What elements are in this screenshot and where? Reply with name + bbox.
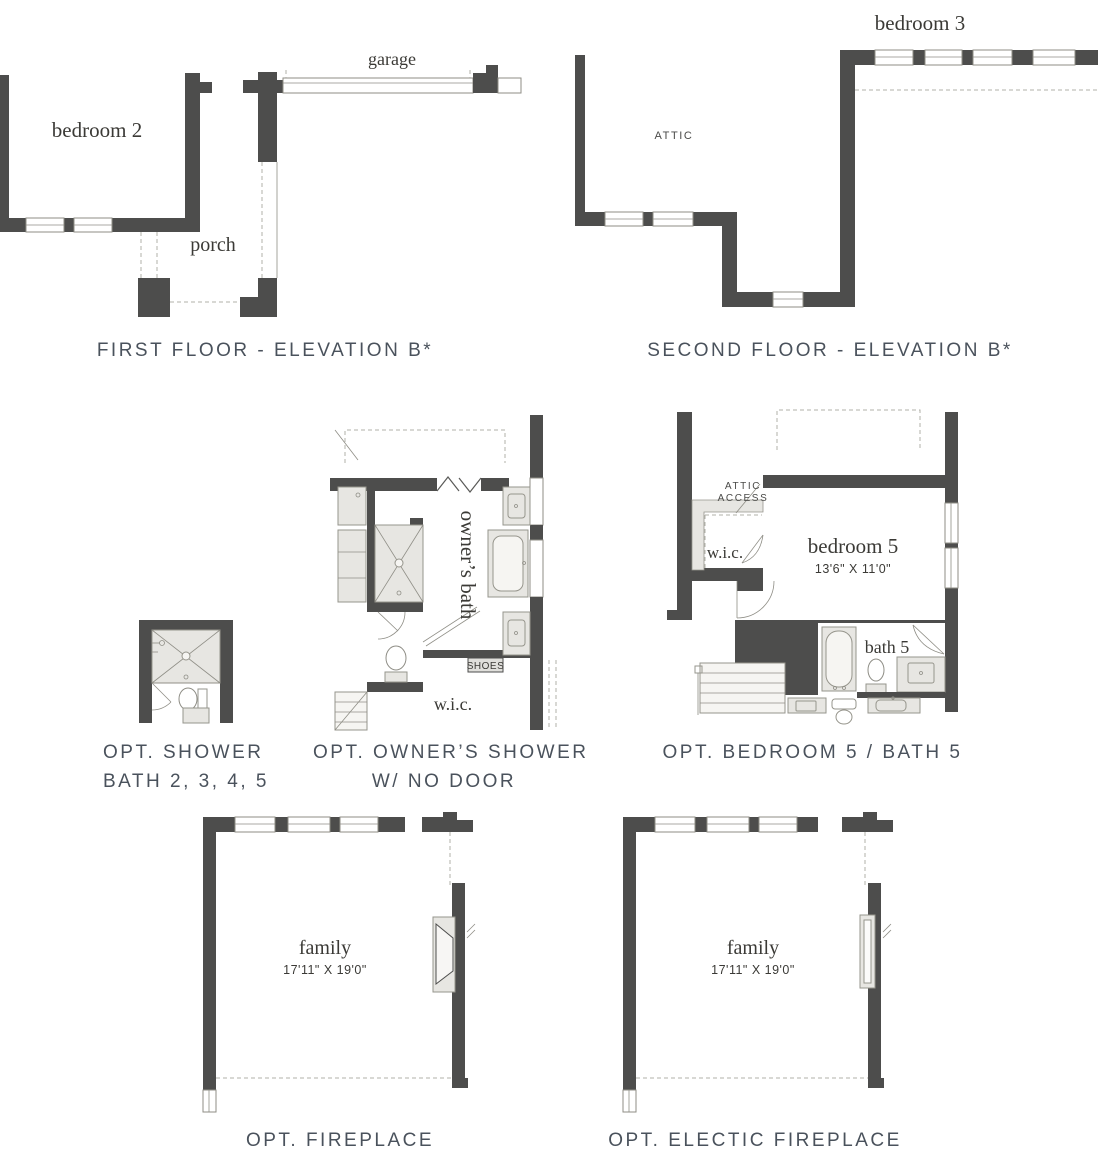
floorplan-sheet: garage bedroom 2 porch FIRST FLOOR - ELE… [0,0,1098,1152]
bath-fixtures [152,683,209,723]
label-bedroom-5-dims: 13'6" X 11'0" [815,562,891,576]
opt-owners-shower-plan: SHOES owner’s bath w.i.c. [330,415,560,730]
label-shoes: SHOES [467,661,505,672]
label-family-dims-electric: 17'11" X 19'0" [711,963,795,977]
second-floor-plan: bedroom 3 ATTIC [560,0,1098,330]
opt-fireplace-plan: family 17'11" X 19'0" [195,812,485,1117]
label-family-electric: family [727,937,779,959]
label-family-fireplace: family [299,937,351,959]
label-attic: ATTIC [655,130,694,142]
label-bedroom-2: bedroom 2 [52,118,142,142]
opt-owners-shower-title-line1: OPT. OWNER’S SHOWER [313,738,575,767]
opt-bedroom5-plan: ATTIC ACCESS w.i.c. bedroom 5 13'6" X 11… [660,405,1000,735]
electric-fireplace-walls [623,812,893,1112]
opt-electric-fireplace-plan: family 17'11" X 19'0" [615,812,905,1117]
first-floor-title: FIRST FLOOR - ELEVATION B* [30,336,500,365]
label-wic-owners: w.i.c. [434,694,472,714]
opt-owners-shower-title: OPT. OWNER’S SHOWER W/ NO DOOR [313,738,575,796]
opt-shower-title: OPT. SHOWER BATH 2, 3, 4, 5 [103,738,269,796]
label-owners-bath: owner’s bath [456,511,480,620]
label-attic-access-2: ACCESS [718,493,769,504]
bath5-area [695,620,945,724]
second-floor-title: SECOND FLOOR - ELEVATION B* [600,336,1060,365]
label-porch: porch [190,234,236,256]
opt-electric-fireplace-title: OPT. ELECTIC FIREPLACE [600,1126,910,1152]
opt-shower-title-line1: OPT. SHOWER [103,738,269,767]
first-floor-plan: garage bedroom 2 porch [0,40,549,352]
label-bath-5: bath 5 [865,637,910,657]
second-floor-walls [575,50,1098,307]
label-bedroom-5: bedroom 5 [808,534,898,558]
opt-owners-shower-title-line2: W/ NO DOOR [313,767,575,796]
opt-shower-title-line2: BATH 2, 3, 4, 5 [103,767,269,796]
opt-bedroom5-title: OPT. BEDROOM 5 / BATH 5 [655,738,970,767]
label-attic-access-1: ATTIC [725,481,761,492]
label-garage: garage [368,49,416,69]
fireplace-fixture [433,917,475,992]
first-floor-walls [0,65,521,317]
label-family-dims-fireplace: 17'11" X 19'0" [283,963,367,977]
opt-shower-plan [139,615,234,725]
shoes-cabinet: SHOES [467,658,505,672]
label-bedroom-3: bedroom 3 [875,11,965,35]
label-wic-bedroom5: w.i.c. [707,543,743,562]
shower-stall [152,630,220,683]
opt-fireplace-title: OPT. FIREPLACE [195,1126,485,1152]
electric-fireplace-fixture [860,915,891,988]
